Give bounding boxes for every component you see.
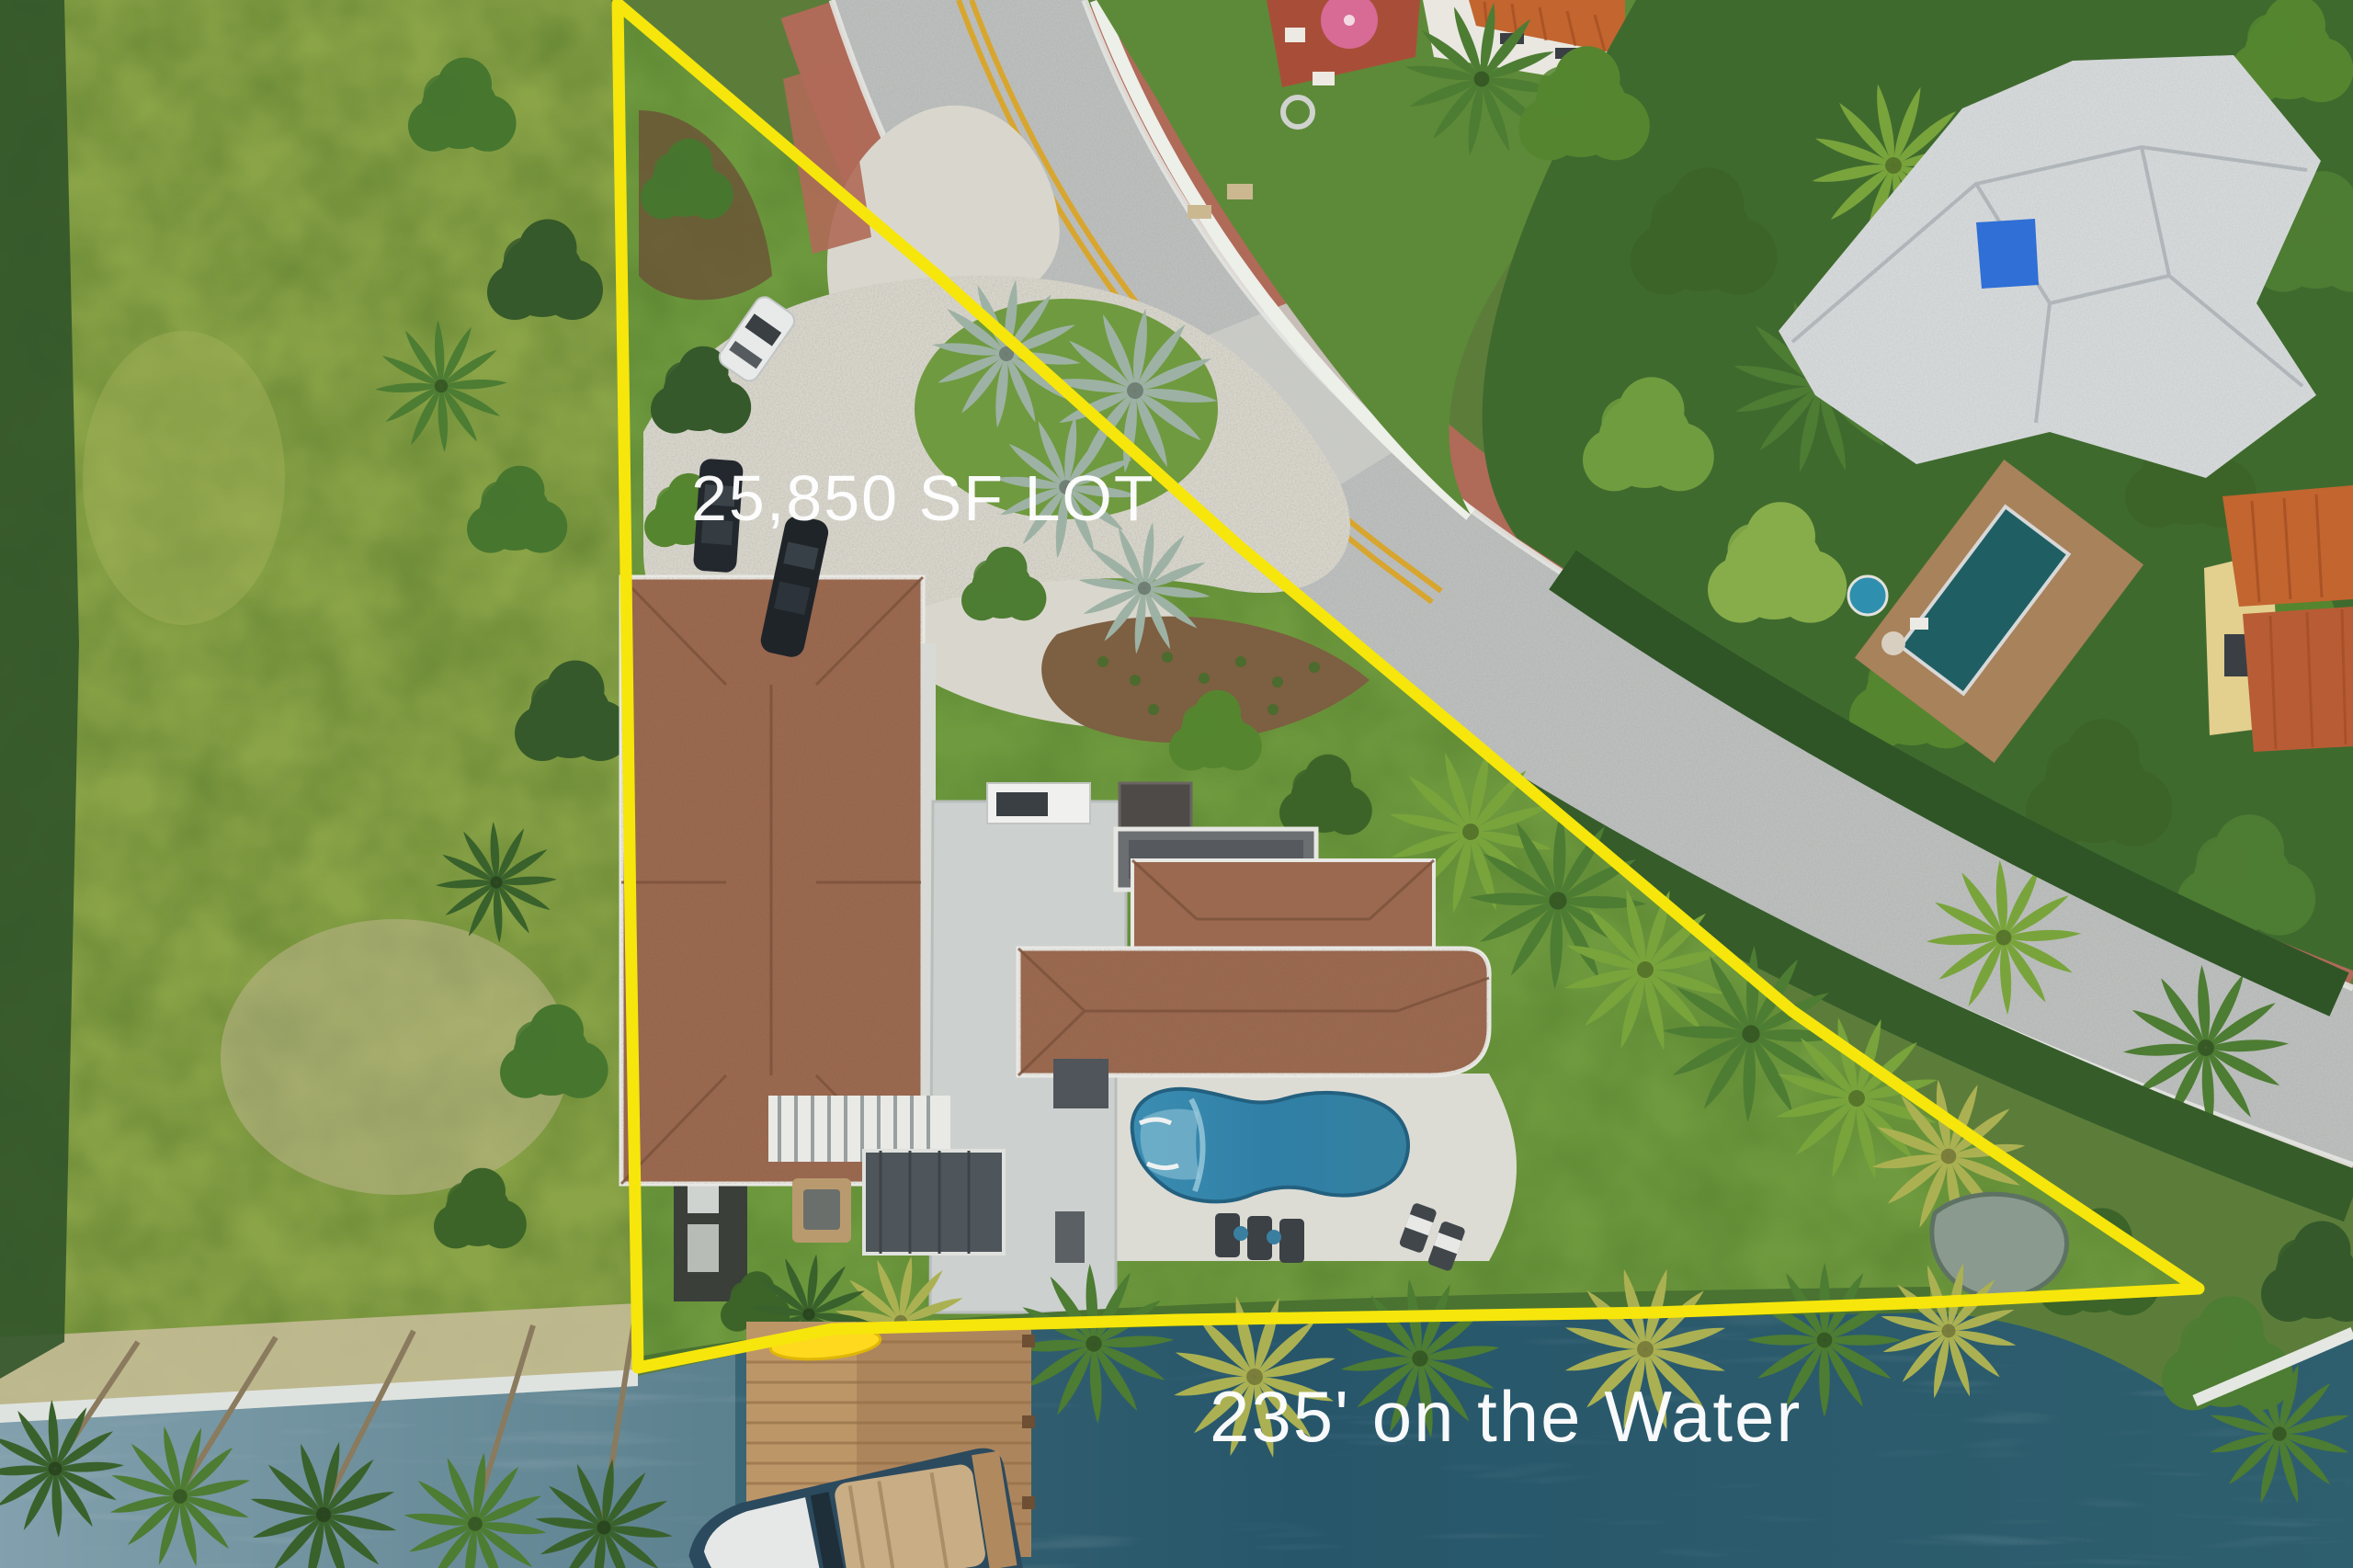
tree-line-west (0, 0, 79, 1379)
terracotta-roof-upper-right (1132, 860, 1434, 950)
patio-chair (1313, 72, 1335, 85)
cabana-roof (864, 1151, 1004, 1254)
dock-pile (1022, 1335, 1035, 1347)
patio-chair (1285, 28, 1305, 42)
side-table (1267, 1230, 1281, 1244)
garden-bench (1227, 184, 1253, 199)
garden-bench (1188, 205, 1211, 219)
blue-tarp (1976, 219, 2039, 289)
ac-unit (688, 1224, 719, 1272)
side-table (1233, 1226, 1248, 1241)
waterfront-length-label: 235' on the Water (1210, 1376, 1802, 1457)
aerial-photo-canvas: 25,850 SF LOT 235' on the Water (0, 0, 2353, 1568)
deck-table (1881, 631, 1905, 655)
roof-hatch (1055, 1211, 1085, 1263)
plunge-pool (1848, 576, 1887, 615)
entry-canopy (1053, 1059, 1108, 1108)
deck-chair (1910, 618, 1928, 630)
dock-pile (1022, 1415, 1035, 1428)
pond (1932, 1194, 2067, 1298)
outdoor-sofa (803, 1189, 840, 1230)
dock-pile (1022, 1496, 1035, 1509)
lot-size-label: 25,850 SF LOT (691, 462, 1155, 534)
aerial-photo: 25,850 SF LOT 235' on the Water (0, 0, 2353, 1568)
patio-furniture (792, 1178, 851, 1243)
